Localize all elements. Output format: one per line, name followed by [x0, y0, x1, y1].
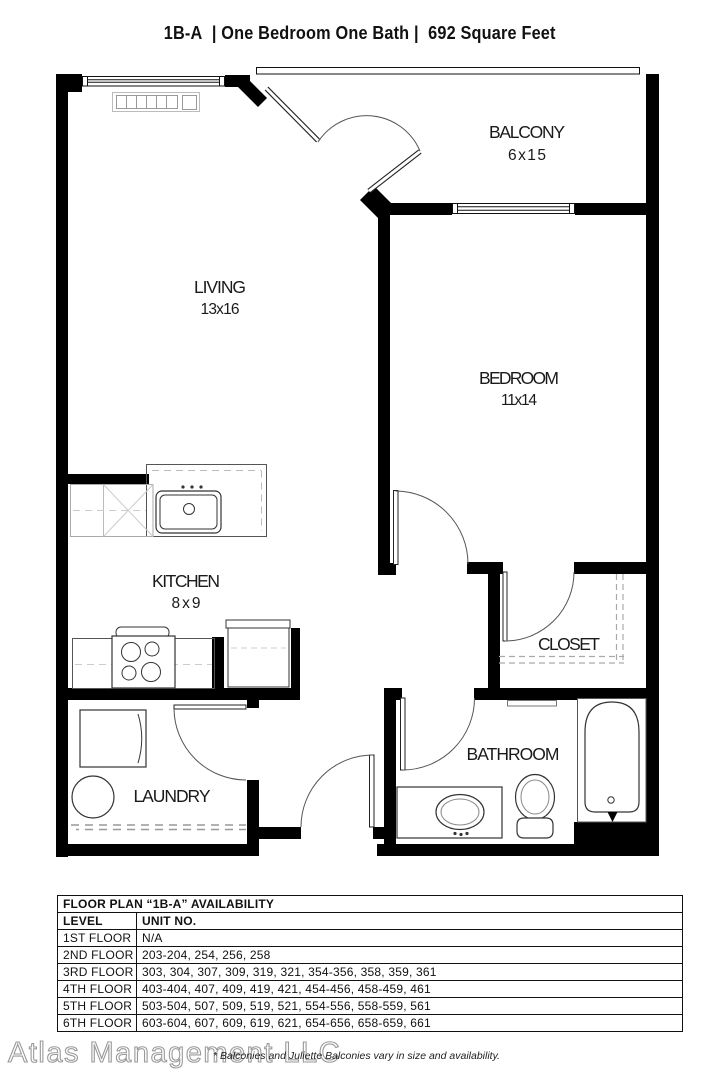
svg-text:BEDROOM: BEDROOM — [479, 368, 559, 388]
svg-text:13x16: 13x16 — [201, 301, 240, 318]
svg-text:11x14: 11x14 — [501, 392, 537, 409]
svg-text:BATHROOM: BATHROOM — [467, 744, 560, 764]
svg-text:CLOSET: CLOSET — [538, 634, 600, 654]
svg-text:BALCONY: BALCONY — [489, 122, 565, 142]
svg-text:6x15: 6x15 — [508, 147, 546, 164]
svg-text:LAUNDRY: LAUNDRY — [134, 786, 211, 806]
svg-text:8x9: 8x9 — [172, 595, 201, 612]
svg-text:LIVING: LIVING — [194, 277, 246, 297]
svg-text:KITCHEN: KITCHEN — [152, 571, 220, 591]
